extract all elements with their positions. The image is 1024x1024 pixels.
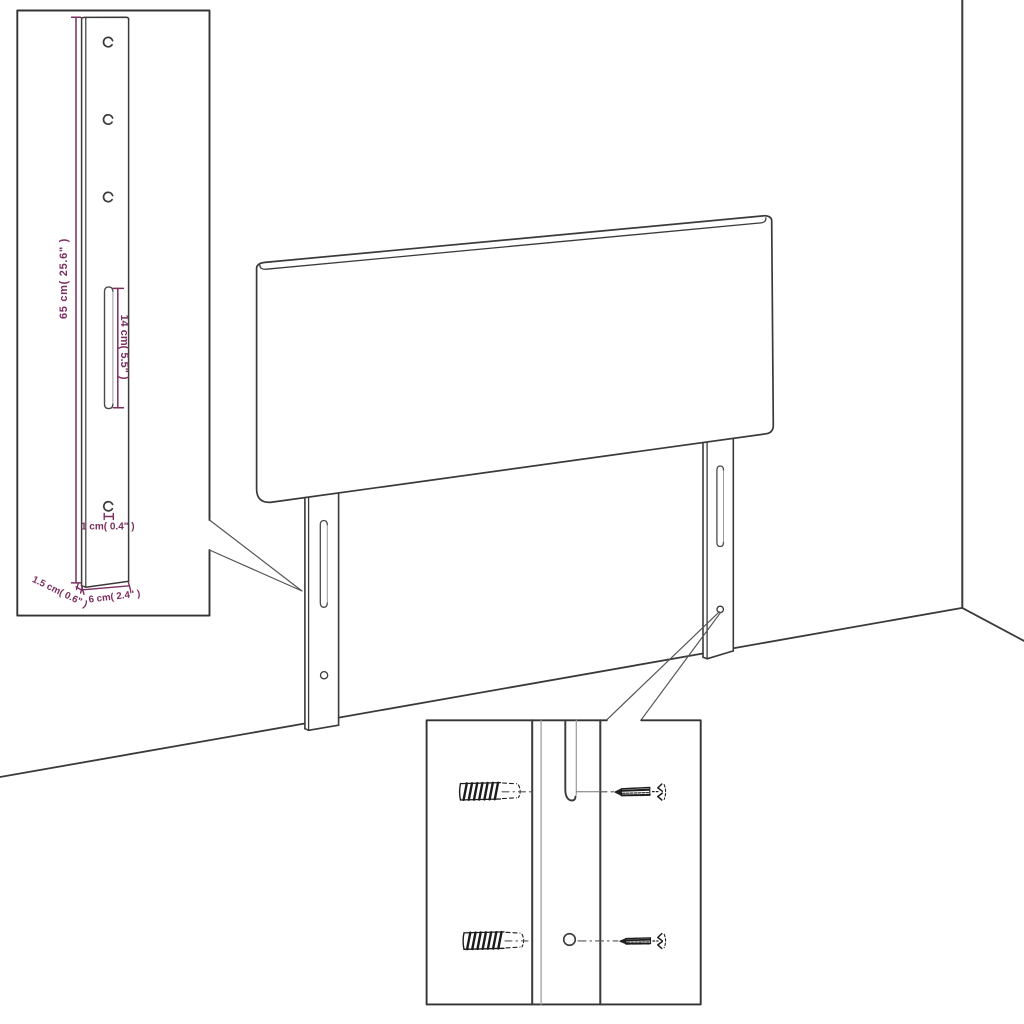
svg-text:6 cm( 2.4" ): 6 cm( 2.4" ) bbox=[88, 588, 141, 605]
svg-text:1 cm( 0.4" ): 1 cm( 0.4" ) bbox=[81, 521, 135, 532]
svg-text:14 cm( 5.5" ): 14 cm( 5.5" ) bbox=[118, 314, 130, 379]
svg-text:65 cm( 25.6" ): 65 cm( 25.6" ) bbox=[58, 238, 70, 319]
